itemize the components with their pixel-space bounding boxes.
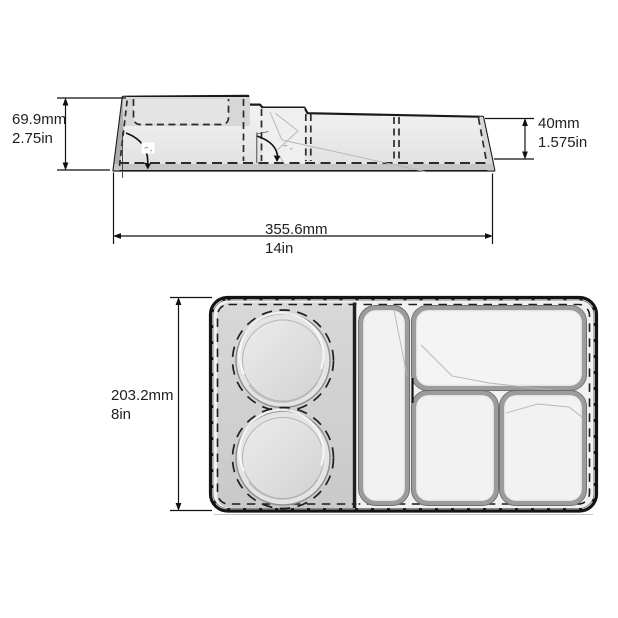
dim-width-label: 355.6mm 14in [265, 220, 328, 258]
dim-height-right-in: 1.575in [538, 133, 587, 152]
bottom-middle-well [412, 391, 499, 506]
dim-depth-label: 203.2mm 8in [111, 386, 174, 424]
top-plan-view [170, 297, 597, 515]
dim-height-left-mm: 69.9mm [12, 110, 66, 129]
side-step-compartment [263, 108, 305, 163]
narrow-vertical-well [359, 306, 410, 506]
dim-height-right-lines [485, 118, 534, 160]
top-right-well [412, 306, 587, 392]
drawing-canvas: 69.9mm 2.75in 40mm 1.575in 355.6mm 14in … [0, 0, 618, 618]
dim-width-in: 14in [265, 239, 328, 258]
tray-technical-drawing [0, 0, 618, 618]
dim-height-left-in: 2.75in [12, 129, 66, 148]
dim-depth-lines [170, 297, 212, 511]
dim-height-left-label: 69.9mm 2.75in [12, 110, 66, 148]
dim-height-right-mm: 40mm [538, 114, 587, 133]
bottom-right-well [500, 391, 587, 506]
dim-width-mm: 355.6mm [265, 220, 328, 239]
dim-depth-in: 8in [111, 405, 174, 424]
side-bottom-band [114, 164, 495, 170]
dim-height-right-label: 40mm 1.575in [538, 114, 587, 152]
dim-depth-mm: 203.2mm [111, 386, 174, 405]
